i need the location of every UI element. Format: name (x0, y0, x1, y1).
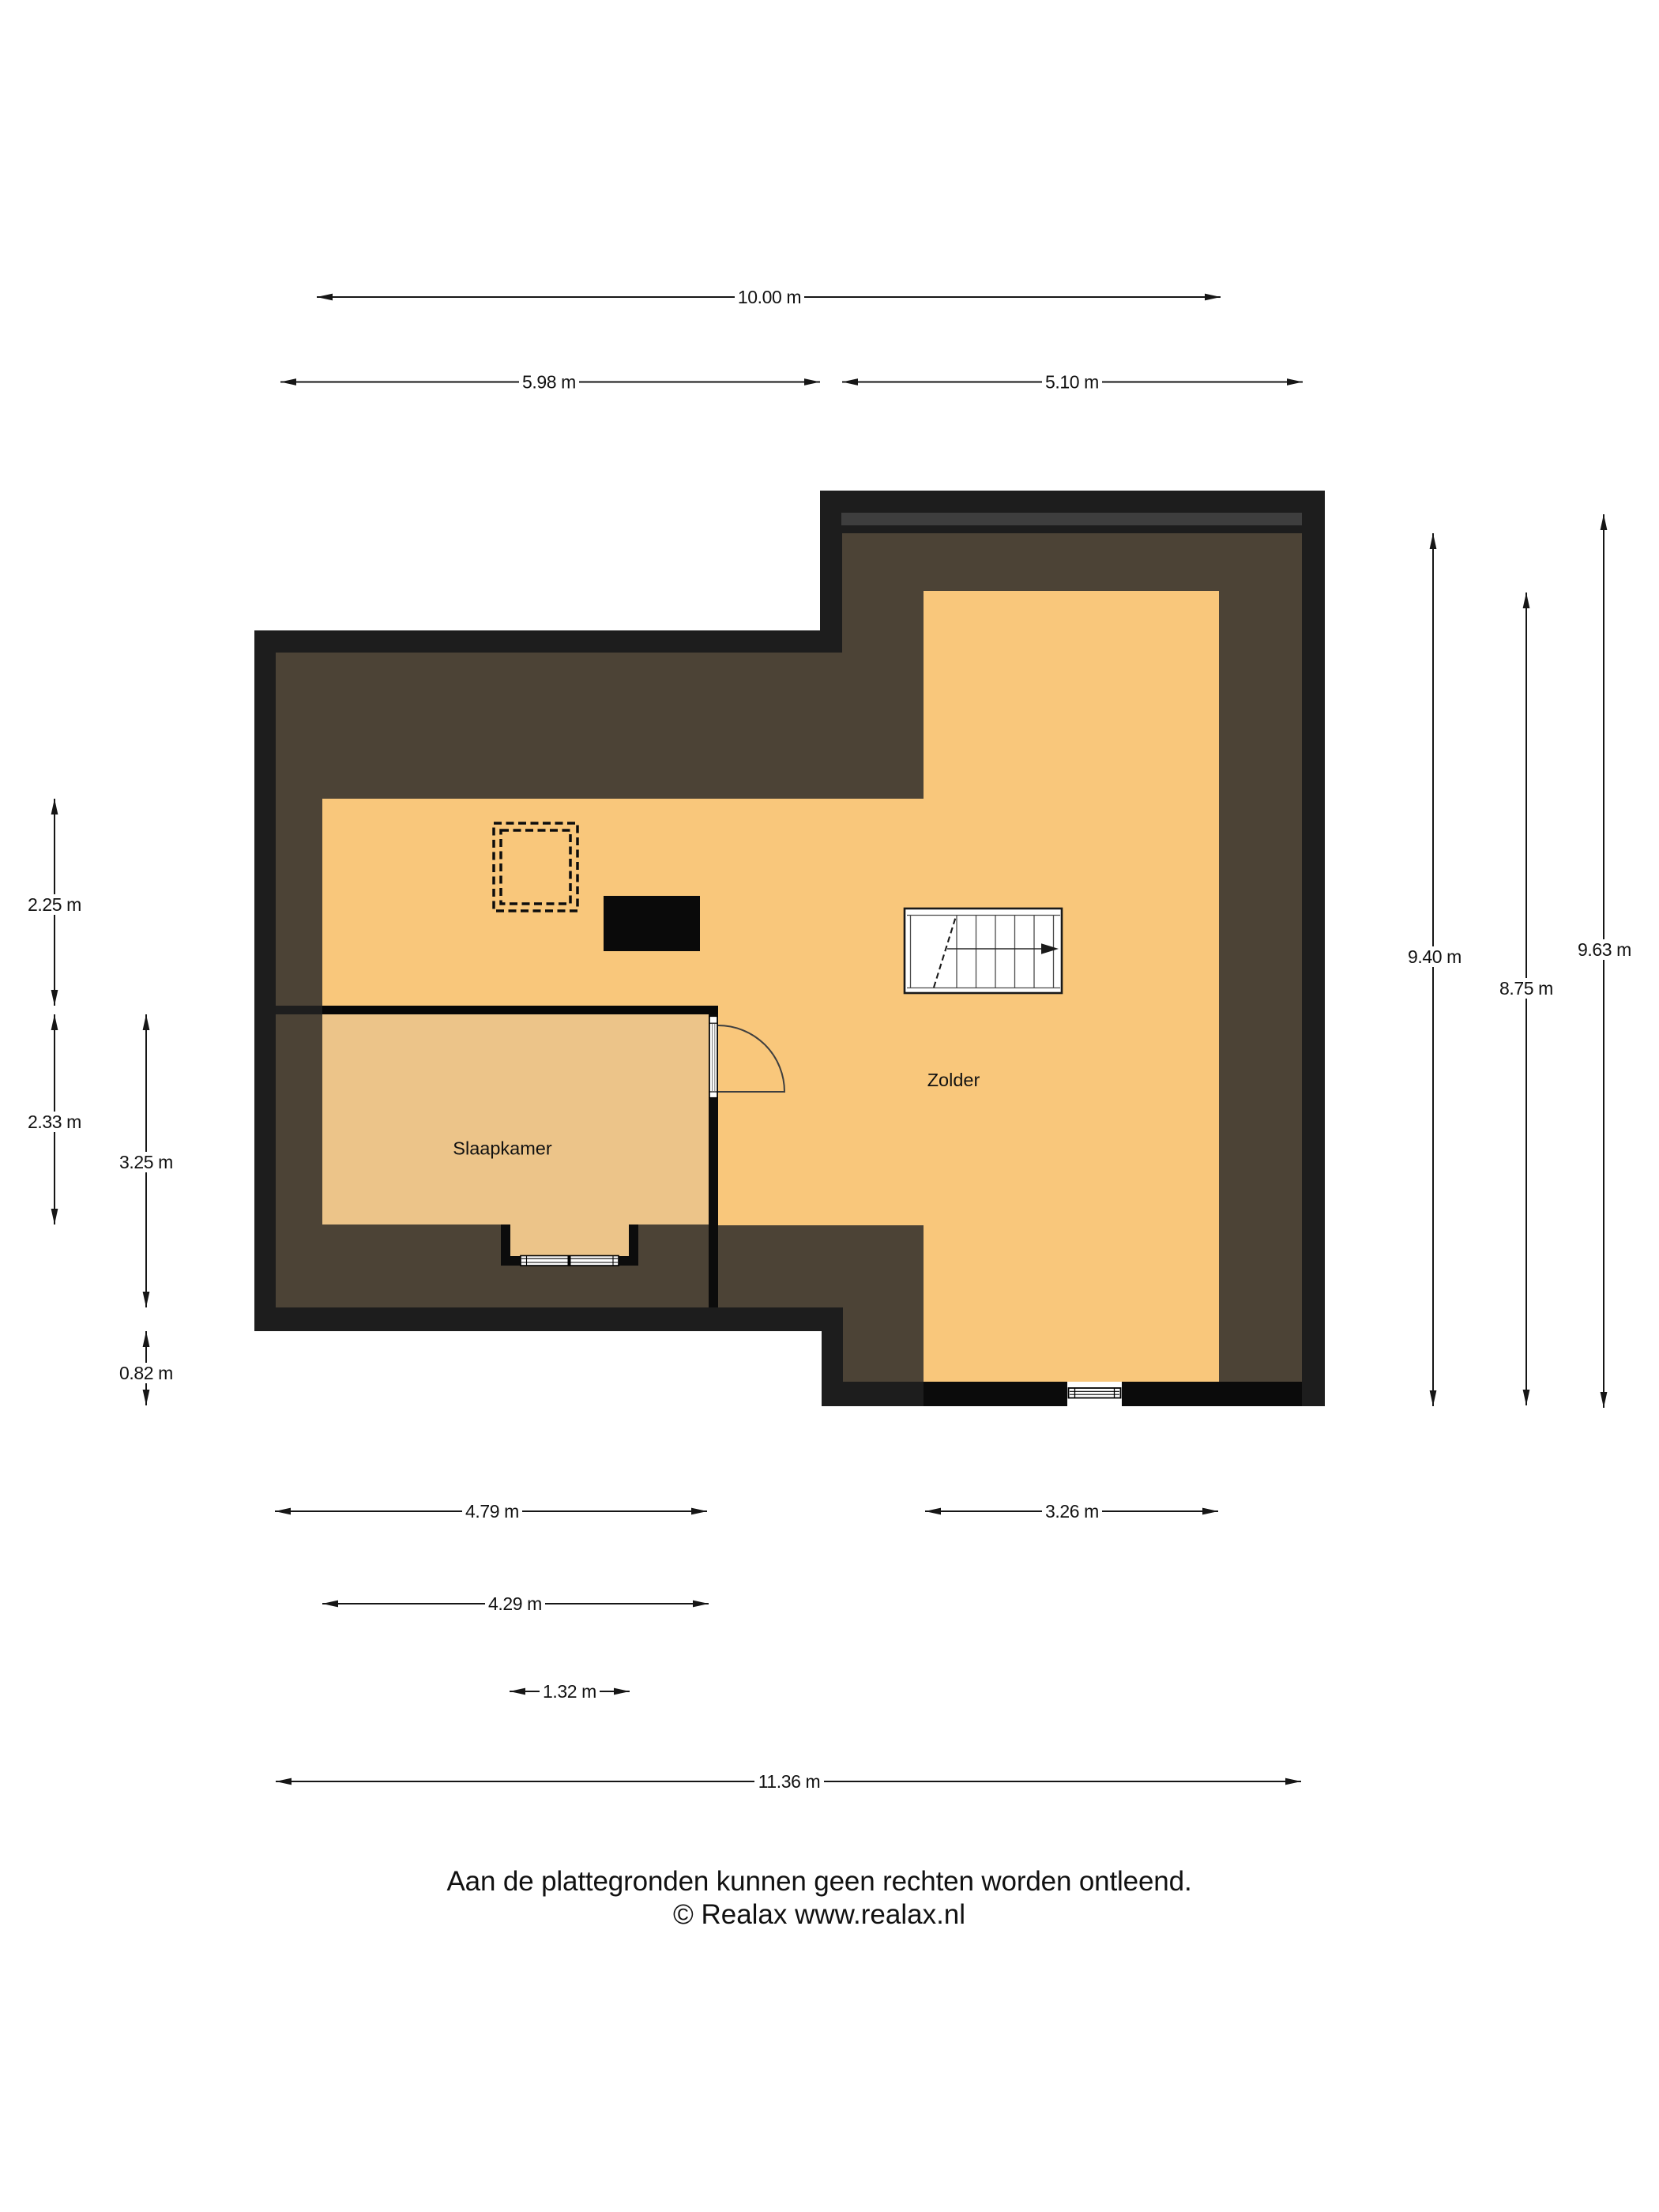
svg-text:0.82 m: 0.82 m (119, 1363, 173, 1383)
svg-text:9.63 m: 9.63 m (1578, 939, 1631, 960)
svg-text:Zolder: Zolder (927, 1070, 980, 1090)
svg-text:9.40 m: 9.40 m (1408, 946, 1461, 967)
svg-text:Slaapkamer: Slaapkamer (453, 1138, 552, 1159)
svg-text:2.25 m: 2.25 m (28, 894, 81, 915)
svg-text:8.75 m: 8.75 m (1499, 978, 1553, 999)
svg-text:1.32 m: 1.32 m (543, 1681, 596, 1702)
svg-text:Aan de plattegronden kunnen ge: Aan de plattegronden kunnen geen rechten… (446, 1866, 1191, 1897)
svg-text:2.33 m: 2.33 m (28, 1112, 81, 1132)
svg-text:10.00 m: 10.00 m (738, 287, 801, 307)
svg-text:3.26 m: 3.26 m (1045, 1501, 1099, 1522)
svg-text:4.29 m: 4.29 m (488, 1593, 542, 1614)
svg-text:11.36 m: 11.36 m (758, 1771, 821, 1792)
svg-text:© Realax www.realax.nl: © Realax www.realax.nl (673, 1899, 965, 1930)
svg-text:5.98 m: 5.98 m (522, 372, 576, 393)
svg-text:4.79 m: 4.79 m (465, 1501, 519, 1522)
svg-text:5.10 m: 5.10 m (1045, 372, 1099, 393)
svg-text:3.25 m: 3.25 m (119, 1152, 173, 1172)
